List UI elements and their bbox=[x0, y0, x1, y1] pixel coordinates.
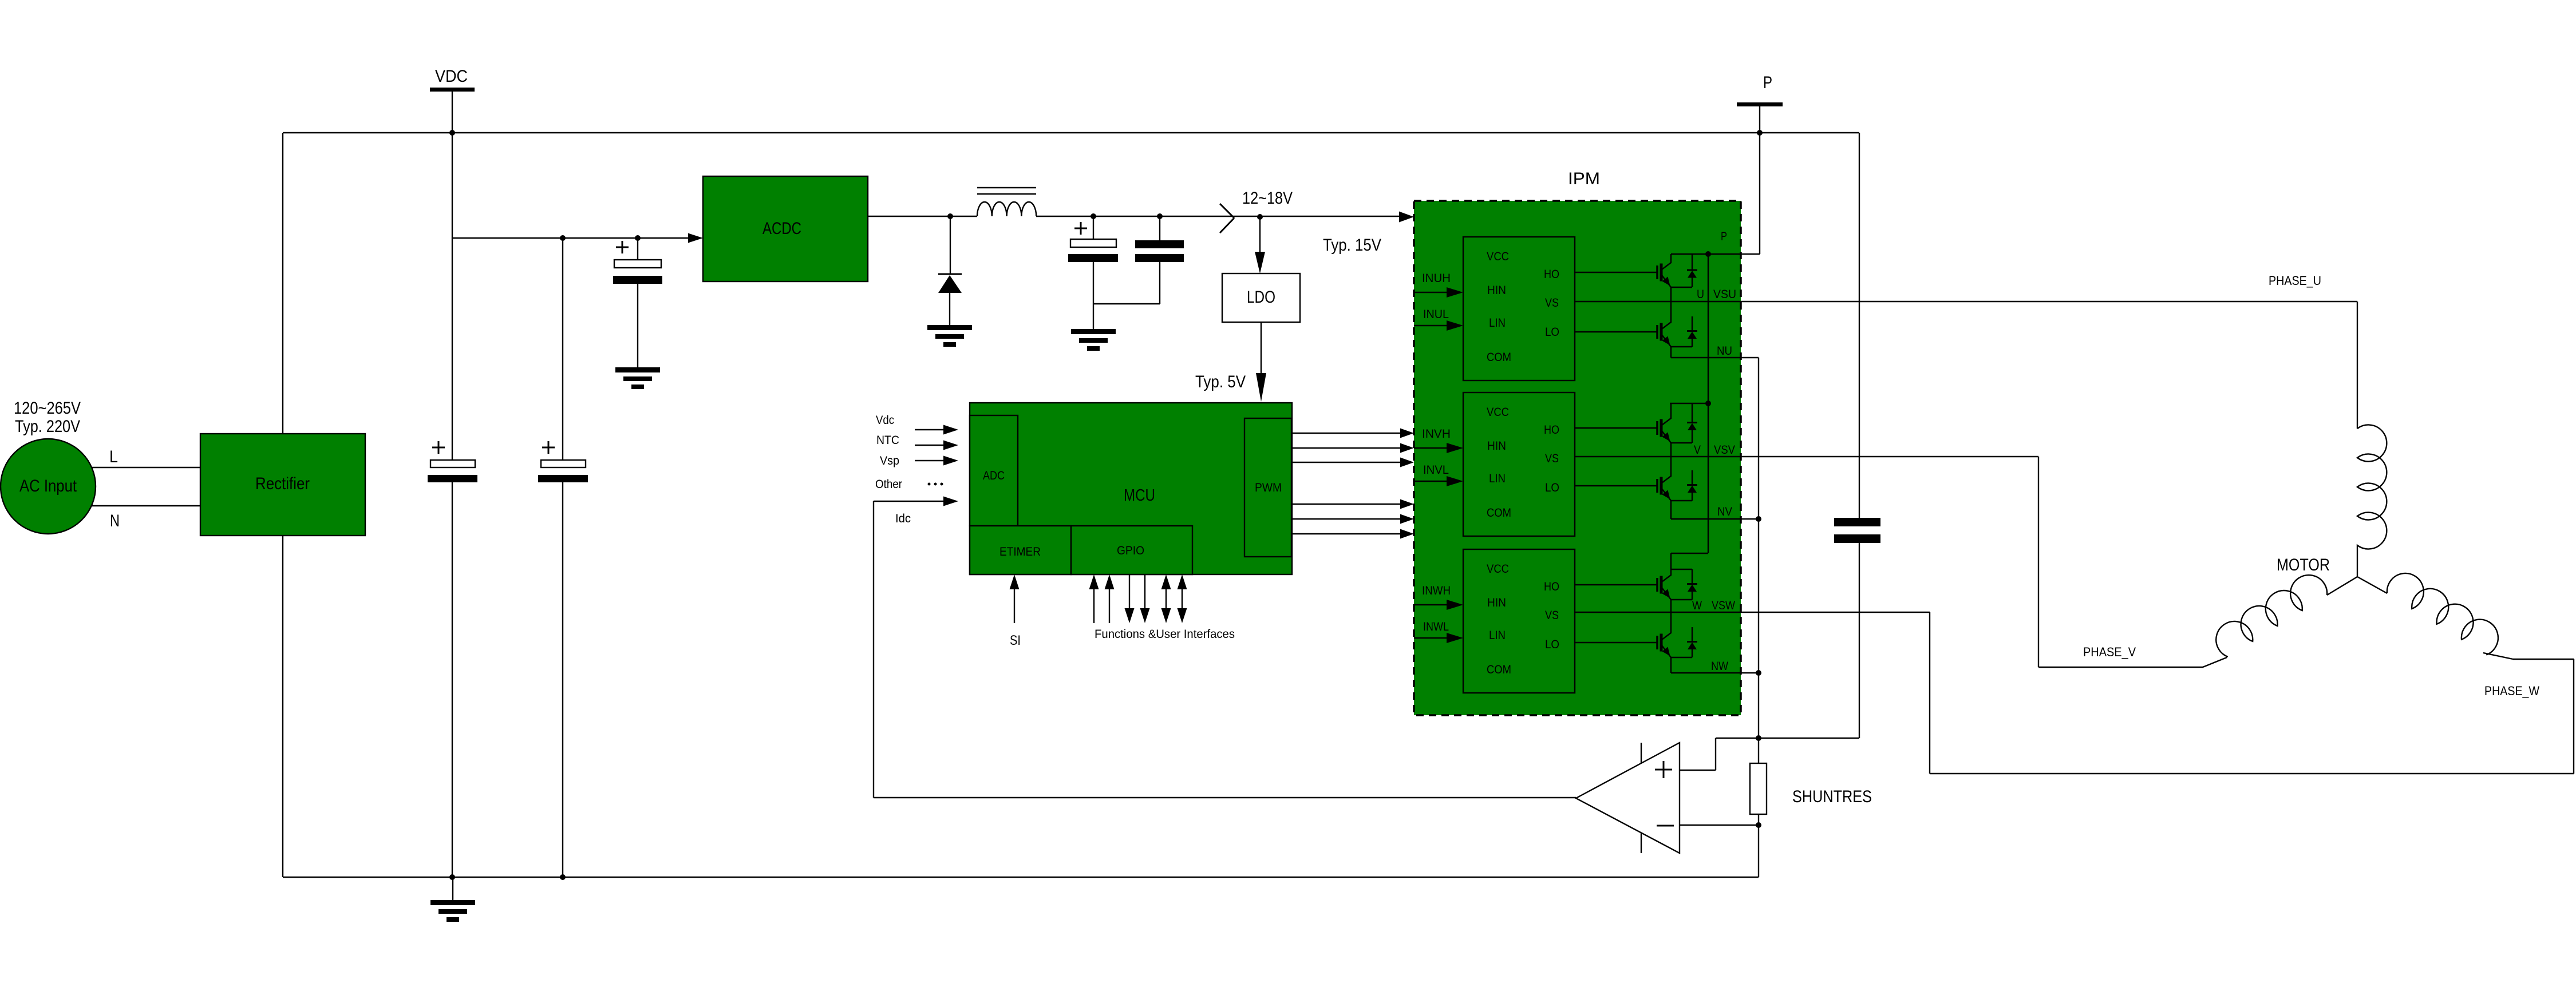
svg-text:HIN: HIN bbox=[1487, 284, 1506, 297]
svg-text:INUL: INUL bbox=[1423, 308, 1449, 321]
svg-text:NV: NV bbox=[1717, 505, 1732, 518]
svg-text:VCC: VCC bbox=[1487, 562, 1509, 576]
svg-text:LIN: LIN bbox=[1489, 472, 1506, 485]
svg-text:LO: LO bbox=[1545, 638, 1559, 651]
svg-text:Functions &User Interfaces: Functions &User Interfaces bbox=[1095, 628, 1235, 641]
svg-text:SI: SI bbox=[1010, 633, 1021, 648]
svg-text:PHASE_U: PHASE_U bbox=[2269, 273, 2321, 288]
svg-text:ADC: ADC bbox=[983, 469, 1005, 482]
svg-text:Typ. 220V: Typ. 220V bbox=[15, 417, 80, 436]
svg-text:INVH: INVH bbox=[1422, 427, 1451, 441]
svg-text:VS: VS bbox=[1545, 609, 1559, 622]
svg-text:COM: COM bbox=[1487, 506, 1511, 520]
svg-text:VS: VS bbox=[1545, 452, 1559, 465]
svg-text:L: L bbox=[109, 447, 118, 466]
svg-text:SHUNTRES: SHUNTRES bbox=[1792, 787, 1872, 806]
svg-text:Rectifier: Rectifier bbox=[255, 474, 310, 493]
svg-text:LDO: LDO bbox=[1247, 288, 1275, 307]
svg-text:MOTOR: MOTOR bbox=[2277, 556, 2330, 574]
svg-text:120~265V: 120~265V bbox=[14, 399, 81, 418]
svg-text:12~18V: 12~18V bbox=[1242, 189, 1293, 208]
svg-text:NTC: NTC bbox=[876, 434, 899, 447]
svg-text:PHASE_W: PHASE_W bbox=[2484, 684, 2539, 698]
svg-text:AC Input: AC Input bbox=[19, 477, 77, 496]
svg-text:HO: HO bbox=[1544, 268, 1559, 281]
svg-text:P: P bbox=[1721, 230, 1727, 243]
svg-text:VS: VS bbox=[1545, 296, 1559, 310]
svg-text:Other: Other bbox=[875, 478, 902, 491]
svg-text:Idc: Idc bbox=[895, 512, 911, 525]
svg-text:COM: COM bbox=[1487, 351, 1511, 364]
svg-text:INWH: INWH bbox=[1422, 584, 1451, 597]
svg-text:Typ. 5V: Typ. 5V bbox=[1195, 372, 1246, 391]
svg-text:V: V bbox=[1694, 443, 1701, 457]
svg-text:HO: HO bbox=[1544, 423, 1559, 437]
svg-text:IPM: IPM bbox=[1568, 169, 1600, 188]
svg-text:INUH: INUH bbox=[1422, 272, 1451, 285]
svg-text:HIN: HIN bbox=[1487, 439, 1506, 453]
svg-text:LO: LO bbox=[1545, 326, 1559, 339]
svg-text:Typ. 15V: Typ. 15V bbox=[1323, 236, 1381, 255]
svg-text:U: U bbox=[1697, 288, 1704, 301]
svg-text:Vdc: Vdc bbox=[876, 414, 894, 427]
svg-text:COM: COM bbox=[1487, 663, 1511, 676]
svg-text:LIN: LIN bbox=[1489, 316, 1506, 330]
svg-text:VSW: VSW bbox=[1712, 599, 1735, 612]
svg-text:N: N bbox=[110, 512, 120, 530]
svg-text:GPIO: GPIO bbox=[1117, 544, 1144, 557]
svg-text:W: W bbox=[1692, 599, 1702, 612]
svg-text:MCU: MCU bbox=[1124, 486, 1155, 505]
svg-text:ETIMER: ETIMER bbox=[999, 545, 1041, 558]
svg-text:NW: NW bbox=[1711, 660, 1728, 673]
svg-text:HO: HO bbox=[1544, 580, 1559, 593]
svg-text:INWL: INWL bbox=[1423, 620, 1449, 633]
svg-text:VDC: VDC bbox=[435, 67, 468, 86]
svg-text:VSV: VSV bbox=[1714, 443, 1735, 457]
svg-text:LO: LO bbox=[1545, 481, 1559, 494]
svg-text:NU: NU bbox=[1717, 344, 1732, 358]
svg-text:INVL: INVL bbox=[1423, 463, 1449, 477]
svg-text:VCC: VCC bbox=[1487, 250, 1509, 263]
svg-text:PHASE_V: PHASE_V bbox=[2083, 645, 2136, 659]
svg-text:ACDC: ACDC bbox=[762, 219, 801, 238]
svg-text:VCC: VCC bbox=[1487, 406, 1509, 419]
svg-text:VSU: VSU bbox=[1713, 288, 1736, 301]
svg-text:Vsp: Vsp bbox=[880, 454, 899, 467]
svg-text:PWM: PWM bbox=[1255, 481, 1282, 494]
svg-text:HIN: HIN bbox=[1487, 596, 1506, 609]
svg-text:P: P bbox=[1763, 73, 1772, 92]
svg-text:LIN: LIN bbox=[1489, 629, 1506, 642]
